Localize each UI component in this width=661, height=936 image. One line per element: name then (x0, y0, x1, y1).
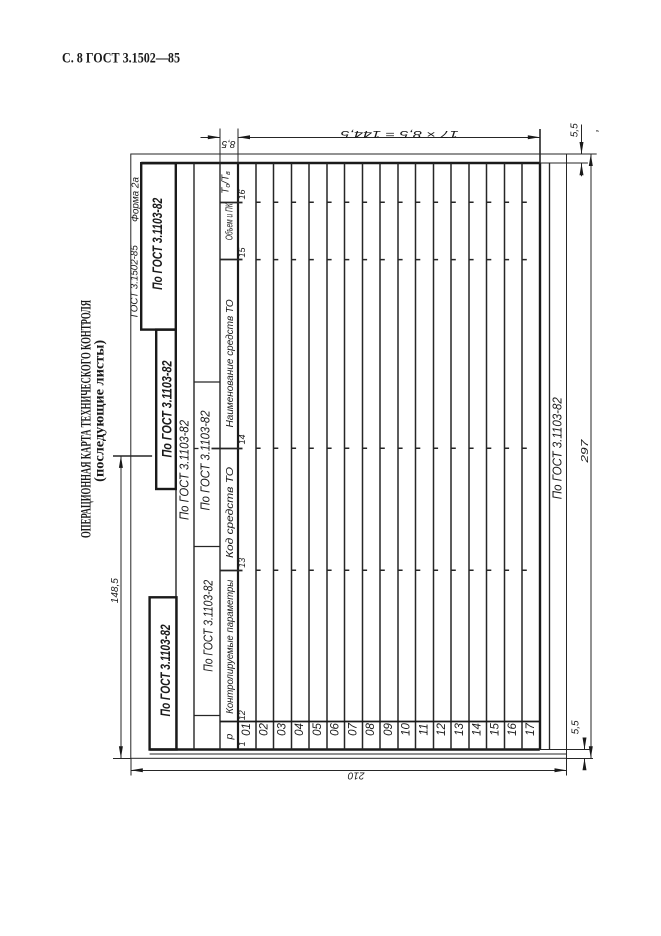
svg-text:08: 08 (365, 723, 377, 736)
svg-text:По ГОСТ 3.1103-82: По ГОСТ 3.1103-82 (551, 397, 565, 499)
svg-text:Код средств ТО: Код средств ТО (224, 467, 236, 558)
svg-text:17: 17 (525, 723, 537, 736)
svg-text:10: 10 (401, 723, 413, 736)
svg-text:07: 07 (347, 723, 359, 736)
svg-text:1: 1 (237, 741, 247, 746)
svg-text:14: 14 (237, 434, 247, 444)
svg-text:12: 12 (237, 710, 247, 720)
svg-text:Форма 2а: Форма 2а (130, 177, 141, 222)
svg-text:р: р (223, 734, 235, 741)
svg-text:13: 13 (237, 558, 247, 568)
svg-text:04: 04 (294, 723, 306, 736)
svg-text:06: 06 (330, 723, 342, 736)
svg-text:По ГОСТ 3.1103-82: По ГОСТ 3.1103-82 (157, 624, 173, 716)
svg-text:По ГОСТ 3.1103-82: По ГОСТ 3.1103-82 (159, 360, 175, 457)
svg-text:03: 03 (276, 723, 288, 736)
svg-text:По ГОСТ 3.1103-82: По ГОСТ 3.1103-82 (177, 420, 191, 520)
svg-text:,: , (587, 129, 601, 132)
svg-text:Объем и ПК: Объем и ПК (224, 203, 236, 241)
svg-text:8,5: 8,5 (221, 138, 235, 149)
svg-text:Контролируемые параметры: Контролируемые параметры (225, 579, 236, 714)
svg-text:15: 15 (237, 247, 247, 258)
svg-text:ГОСТ 3.1502-85: ГОСТ 3.1502-85 (129, 245, 140, 317)
svg-text:То/Тв: То/Тв (221, 171, 232, 194)
svg-text:148,5: 148,5 (110, 578, 121, 603)
svg-text:По ГОСТ 3.1103-82: По ГОСТ 3.1103-82 (149, 198, 165, 290)
svg-text:5,5: 5,5 (571, 720, 582, 734)
svg-text:(последующие листы): (последующие листы) (92, 340, 107, 482)
svg-text:11: 11 (418, 724, 430, 736)
svg-text:14: 14 (472, 723, 484, 736)
svg-text:Наименование средств ТО: Наименование средств ТО (224, 299, 236, 427)
svg-text:05: 05 (312, 723, 324, 736)
svg-text:С. 8 ГОСТ 3.1502—85: С. 8 ГОСТ 3.1502—85 (62, 51, 180, 67)
svg-text:16: 16 (507, 723, 519, 736)
svg-text:297: 297 (579, 438, 591, 464)
svg-text:По ГОСТ 3.1103-82: По ГОСТ 3.1103-82 (198, 410, 212, 510)
svg-text:09: 09 (383, 723, 395, 736)
svg-text:210: 210 (347, 769, 365, 780)
svg-text:13: 13 (454, 723, 466, 736)
svg-text:16: 16 (237, 189, 247, 199)
svg-text:01: 01 (241, 723, 253, 736)
svg-text:12: 12 (436, 723, 448, 736)
svg-text:По ГОСТ 3.1103-82: По ГОСТ 3.1103-82 (201, 580, 215, 672)
svg-text:02: 02 (259, 723, 271, 736)
svg-text:5,5: 5,5 (570, 123, 581, 137)
svg-text:17 × 8,5 = 144,5: 17 × 8,5 = 144,5 (340, 128, 458, 140)
svg-text:15: 15 (489, 723, 501, 736)
